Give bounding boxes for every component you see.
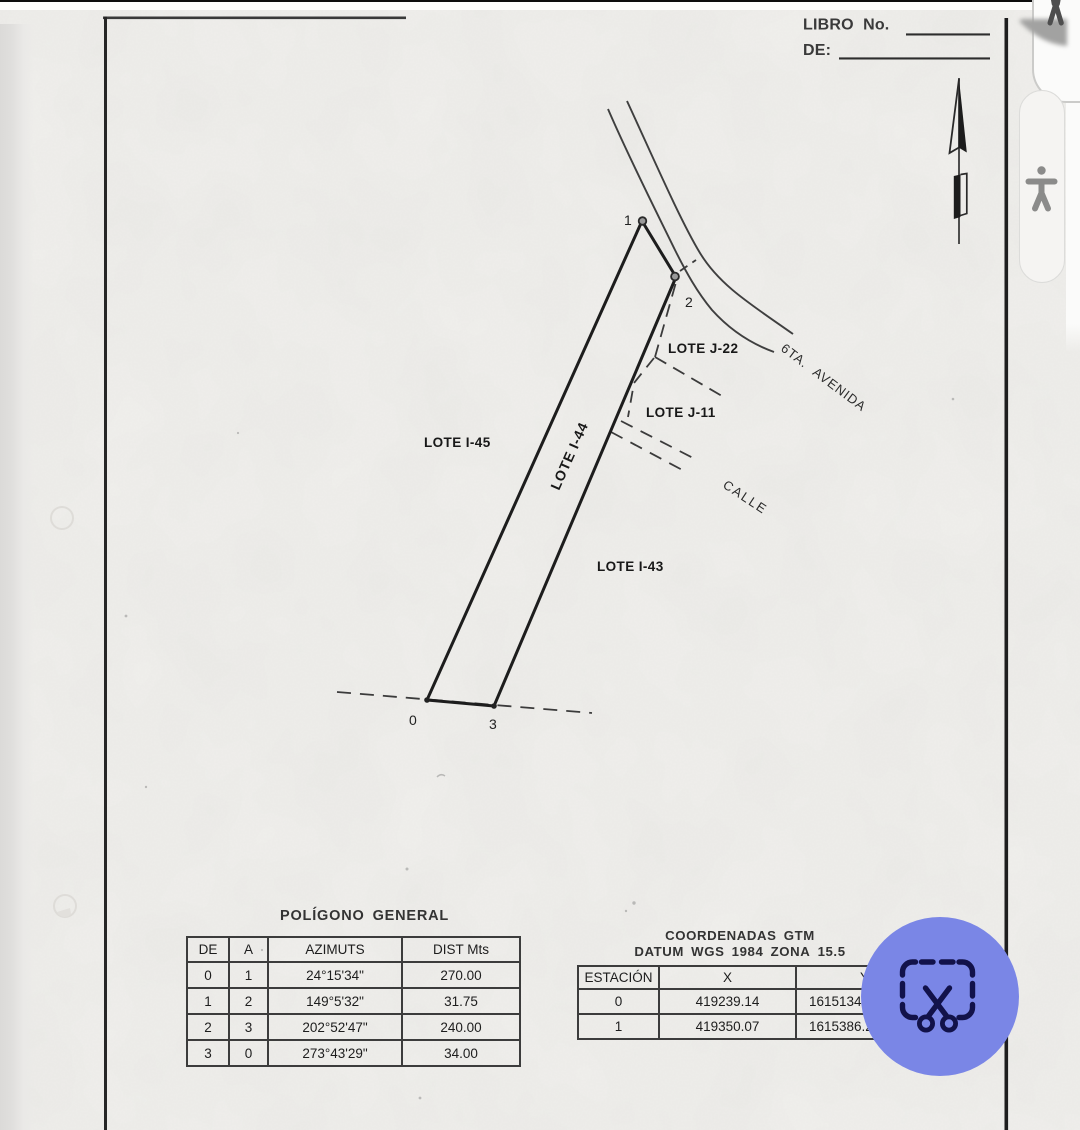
svg-text:0: 0	[409, 712, 417, 728]
svg-text:CALLE: CALLE	[720, 477, 770, 517]
svg-text:2: 2	[685, 294, 693, 310]
svg-text:DE:: DE:	[803, 42, 831, 59]
svg-text:LOTE I-45: LOTE I-45	[424, 435, 491, 450]
svg-text:LOTE I-43: LOTE I-43	[597, 559, 664, 574]
svg-text:LOTE I-44: LOTE I-44	[547, 419, 591, 492]
svg-text:6TA. AVENIDA: 6TA. AVENIDA	[778, 340, 869, 414]
svg-text:1: 1	[624, 212, 632, 228]
svg-text:LIBRO No.: LIBRO No.	[803, 17, 889, 34]
svg-text:LOTE J-22: LOTE J-22	[668, 341, 738, 356]
svg-text:3: 3	[489, 716, 497, 732]
svg-text:LOTE J-11: LOTE J-11	[646, 405, 716, 420]
